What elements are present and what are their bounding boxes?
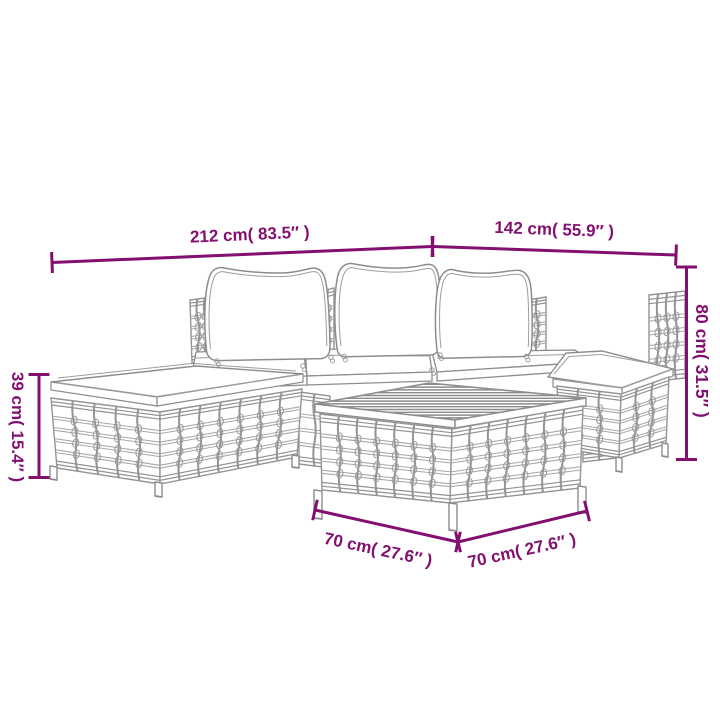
svg-text:80 cm( 31.5″ ): 80 cm( 31.5″ ): [692, 304, 712, 417]
svg-text:39 cm( 15.4″ ): 39 cm( 15.4″ ): [8, 372, 27, 482]
